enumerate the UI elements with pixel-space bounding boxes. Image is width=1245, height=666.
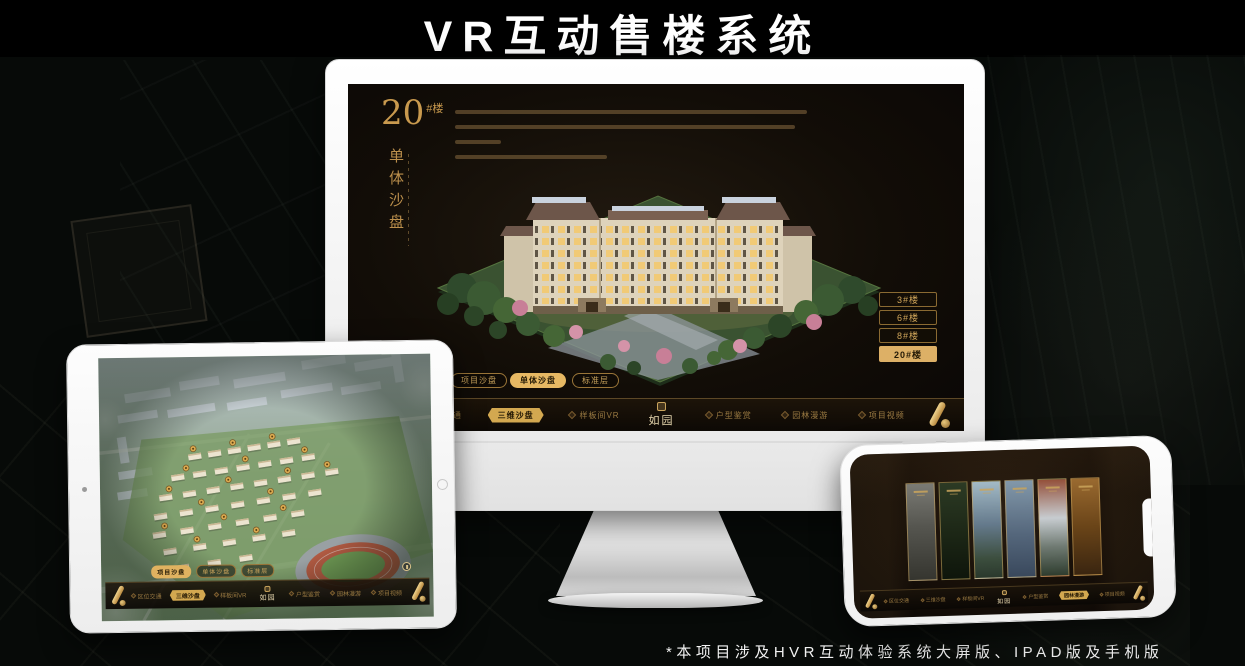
tab-standard-floor[interactable]: 标准层 bbox=[572, 373, 619, 388]
nav-item-label: 三维沙盘 bbox=[176, 590, 200, 599]
brand-logo[interactable]: 如园 bbox=[250, 585, 284, 602]
diamond-emblem-icon bbox=[371, 590, 377, 596]
building-number: 20 bbox=[381, 96, 424, 130]
monitor-base bbox=[548, 593, 763, 608]
nav-item-label: 户型鉴赏 bbox=[1028, 592, 1048, 600]
scroll-ornament-icon[interactable] bbox=[107, 584, 127, 608]
background-plaque bbox=[70, 204, 207, 338]
brand-logo-text: 如园 bbox=[649, 412, 675, 428]
phone-app-screen: 区位交通 三维沙盘 样板间VR 如园 bbox=[850, 446, 1155, 619]
diamond-emblem-icon bbox=[330, 590, 336, 596]
tablet-device: 项目沙盘 单体沙盘 标准层 区位交通 三维沙盘 样板间 bbox=[66, 339, 457, 633]
seal-icon bbox=[1001, 590, 1006, 595]
brand-logo-text: 如园 bbox=[997, 595, 1011, 604]
nav-item-label: 园林漫游 bbox=[337, 588, 361, 597]
tablet-bottom-nav: 区位交通 三维沙盘 样板间VR 如园 bbox=[105, 578, 429, 610]
nav-item-label: 园林漫游 bbox=[792, 410, 828, 421]
description-text-line bbox=[455, 125, 795, 129]
scroll-ornament-icon[interactable] bbox=[920, 400, 954, 430]
nav-item-label: 园林漫游 bbox=[1064, 591, 1084, 599]
building-subtitle-english-vertical bbox=[408, 154, 409, 246]
monitor-stand bbox=[556, 510, 756, 596]
nav-item-label: 项目视频 bbox=[1105, 590, 1125, 598]
nav-item-label: 区位交通 bbox=[889, 597, 909, 605]
nav-item-showroom-vr[interactable]: 样板间VR bbox=[214, 590, 246, 599]
nav-item-label: 样板间VR bbox=[220, 590, 246, 599]
building-number-suffix: #楼 bbox=[426, 100, 443, 116]
seal-icon bbox=[264, 585, 270, 591]
diamond-emblem-icon bbox=[131, 593, 137, 599]
building-sandtable-render[interactable] bbox=[428, 140, 888, 398]
page: VR互动售楼系统 20 #楼 单体沙盘 bbox=[0, 0, 1245, 666]
page-title: VR互动售楼系统 bbox=[0, 2, 1245, 64]
scene-panel-exterior[interactable] bbox=[971, 480, 1003, 579]
diamond-emblem-icon bbox=[289, 591, 295, 597]
phone-power-button bbox=[946, 439, 968, 443]
tab-single-sandtable[interactable]: 单体沙盘 bbox=[510, 373, 566, 388]
nav-item-label: 项目视频 bbox=[378, 588, 402, 597]
diamond-emblem-icon bbox=[1023, 594, 1027, 598]
floor-button-8[interactable]: 8#楼 bbox=[879, 328, 937, 343]
nav-item-unit-gallery[interactable]: 户型鉴赏 bbox=[1023, 592, 1048, 600]
nav-item-garden-roam[interactable]: 园林漫游 bbox=[782, 410, 828, 421]
tablet-tab-project-sandtable[interactable]: 项目沙盘 bbox=[151, 565, 191, 579]
background-aerial-photo bbox=[955, 55, 1245, 485]
phone-device: 区位交通 三维沙盘 样板间VR 如园 bbox=[839, 435, 1177, 627]
diamond-emblem-icon bbox=[568, 411, 576, 419]
nav-item-showroom-vr[interactable]: 样板间VR bbox=[569, 410, 619, 421]
floor-button-6[interactable]: 6#楼 bbox=[879, 310, 937, 325]
nav-item-label: 样板间VR bbox=[962, 594, 984, 602]
nav-item-location-traffic[interactable]: 区位交通 bbox=[132, 591, 162, 600]
nav-item-project-video[interactable]: 项目视频 bbox=[1100, 590, 1125, 598]
nav-item-location-traffic[interactable]: 区位交通 bbox=[884, 597, 909, 605]
phone-notch bbox=[1142, 498, 1154, 556]
seal-icon bbox=[657, 402, 666, 411]
phone-volume-button bbox=[902, 440, 936, 444]
diamond-emblem-icon bbox=[705, 411, 713, 419]
scene-panel-building[interactable] bbox=[1004, 479, 1036, 578]
tablet-tab-single-sandtable[interactable]: 单体沙盘 bbox=[196, 564, 236, 578]
tablet-tab-standard-floor[interactable]: 标准层 bbox=[241, 564, 274, 577]
tab-project-sandtable[interactable]: 项目沙盘 bbox=[451, 373, 507, 388]
nav-right-group: 户型鉴赏 园林漫游 项目视频 bbox=[691, 410, 921, 421]
diamond-emblem-icon bbox=[920, 598, 924, 602]
footnote-text: *本项目涉及HVR互动体验系统大屏版、IPAD版及手机版 bbox=[666, 641, 1163, 662]
nav-item-garden-roam-selected[interactable]: 园林漫游 bbox=[1059, 590, 1089, 600]
nav-item-label: 户型鉴赏 bbox=[296, 589, 320, 598]
nav-item-project-video[interactable]: 项目视频 bbox=[859, 410, 905, 421]
nav-item-label: 三维沙盘 bbox=[498, 410, 534, 421]
nav-item-3d-sandtable[interactable]: 三维沙盘 bbox=[921, 595, 946, 603]
nav-item-label: 三维沙盘 bbox=[926, 595, 946, 603]
brand-logo[interactable]: 如园 bbox=[990, 589, 1018, 605]
building-number-label: 20 #楼 bbox=[381, 96, 443, 130]
nav-item-showroom-vr[interactable]: 样板间VR bbox=[957, 594, 984, 602]
diamond-emblem-icon bbox=[781, 411, 789, 419]
description-text-line bbox=[455, 110, 807, 114]
nav-item-unit-gallery[interactable]: 户型鉴赏 bbox=[290, 589, 320, 598]
scroll-ornament-icon[interactable] bbox=[407, 580, 427, 604]
tablet-view-tabs: 项目沙盘 单体沙盘 标准层 bbox=[151, 564, 274, 579]
floor-button-3[interactable]: 3#楼 bbox=[879, 292, 937, 307]
building-subtitle-vertical: 单体沙盘 bbox=[386, 148, 407, 236]
diamond-emblem-icon bbox=[213, 592, 219, 598]
brand-logo[interactable]: 如园 bbox=[633, 402, 691, 428]
scene-panel-interior[interactable] bbox=[905, 482, 937, 581]
brand-logo-text: 如园 bbox=[259, 592, 275, 602]
diamond-emblem-icon bbox=[883, 599, 887, 603]
floor-button-20-selected[interactable]: 20#楼 bbox=[879, 346, 937, 362]
diamond-emblem-icon bbox=[858, 411, 866, 419]
scroll-ornament-icon[interactable] bbox=[862, 592, 879, 610]
nav-item-label: 户型鉴赏 bbox=[716, 410, 752, 421]
scroll-ornament-icon[interactable] bbox=[1130, 584, 1147, 602]
nav-item-garden-roam[interactable]: 园林漫游 bbox=[331, 588, 361, 597]
scene-panel-autumn[interactable] bbox=[1037, 478, 1069, 577]
tablet-camera-dot bbox=[82, 486, 87, 491]
scene-panel-garden[interactable] bbox=[938, 481, 970, 580]
nav-item-3d-sandtable-selected[interactable]: 三维沙盘 bbox=[170, 589, 206, 601]
nav-item-label: 项目视频 bbox=[869, 410, 905, 421]
scene-panel-study[interactable] bbox=[1070, 477, 1102, 576]
nav-item-label: 样板间VR bbox=[579, 410, 619, 421]
tablet-app-screen: 项目沙盘 单体沙盘 标准层 区位交通 三维沙盘 样板间 bbox=[98, 354, 434, 622]
nav-item-3d-sandtable-selected[interactable]: 三维沙盘 bbox=[488, 408, 544, 423]
nav-item-label: 区位交通 bbox=[138, 591, 162, 600]
diamond-emblem-icon bbox=[957, 596, 961, 600]
diamond-emblem-icon bbox=[1099, 592, 1103, 596]
nav-item-unit-gallery[interactable]: 户型鉴赏 bbox=[706, 410, 752, 421]
compass-icon[interactable] bbox=[402, 562, 411, 571]
nav-item-project-video[interactable]: 项目视频 bbox=[372, 588, 402, 597]
tablet-home-button[interactable] bbox=[437, 478, 448, 489]
